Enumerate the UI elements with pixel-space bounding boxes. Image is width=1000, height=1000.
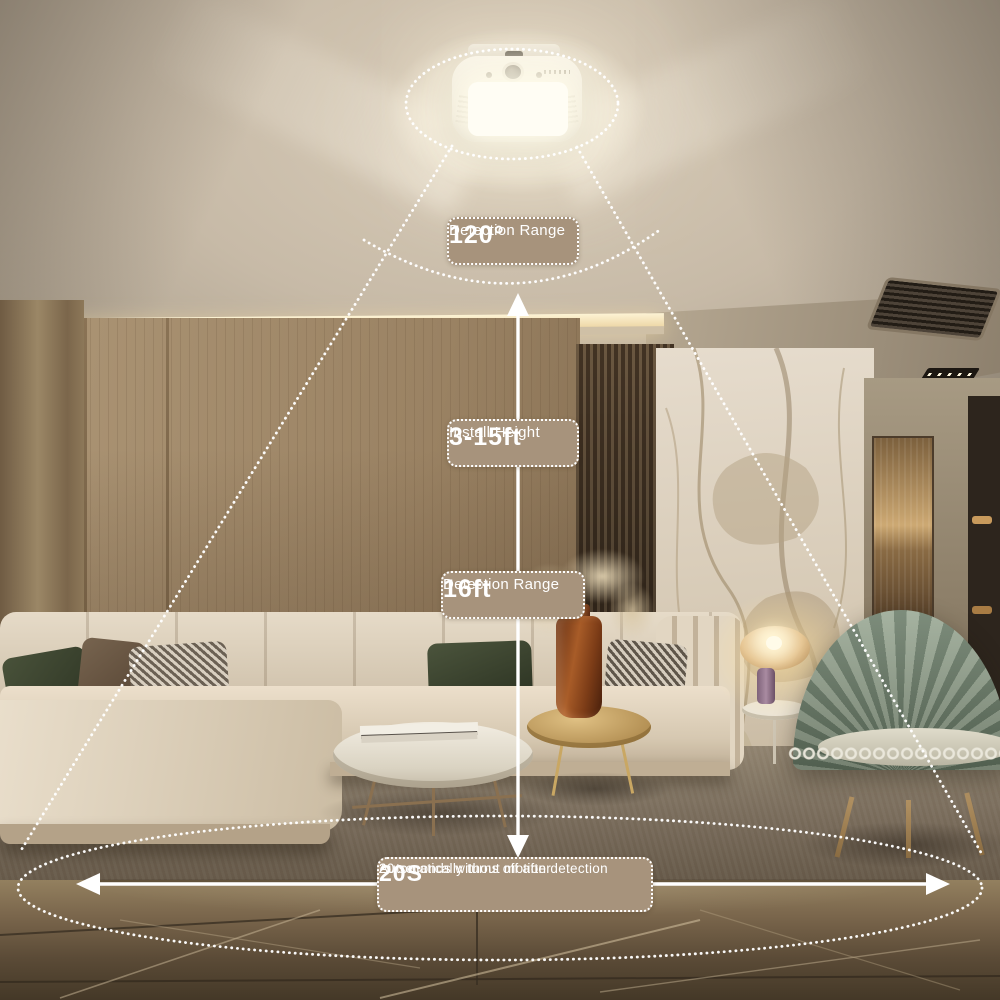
label-line: 20 seconds without motion detection (379, 861, 608, 876)
label-value: 16ft (443, 576, 491, 604)
detection-diagram (0, 0, 1000, 1000)
detection-cone-left-line (20, 146, 452, 852)
label-detection-angle: Detection Range 120° (447, 217, 579, 265)
fixture-detection-ellipse (406, 49, 618, 159)
label-auto-off: 20S Automatically turns off after 20 sec… (377, 857, 653, 912)
label-value: 120° (449, 222, 505, 250)
detection-cone-right-line (577, 147, 983, 856)
product-infographic: Detection Range 120° Install Height 3-15… (0, 0, 1000, 1000)
label-install-height: Install Height 3-15ft (447, 419, 579, 467)
label-detection-distance: Detection Range 16ft (441, 571, 585, 619)
label-value: 3-15ft (449, 424, 522, 452)
